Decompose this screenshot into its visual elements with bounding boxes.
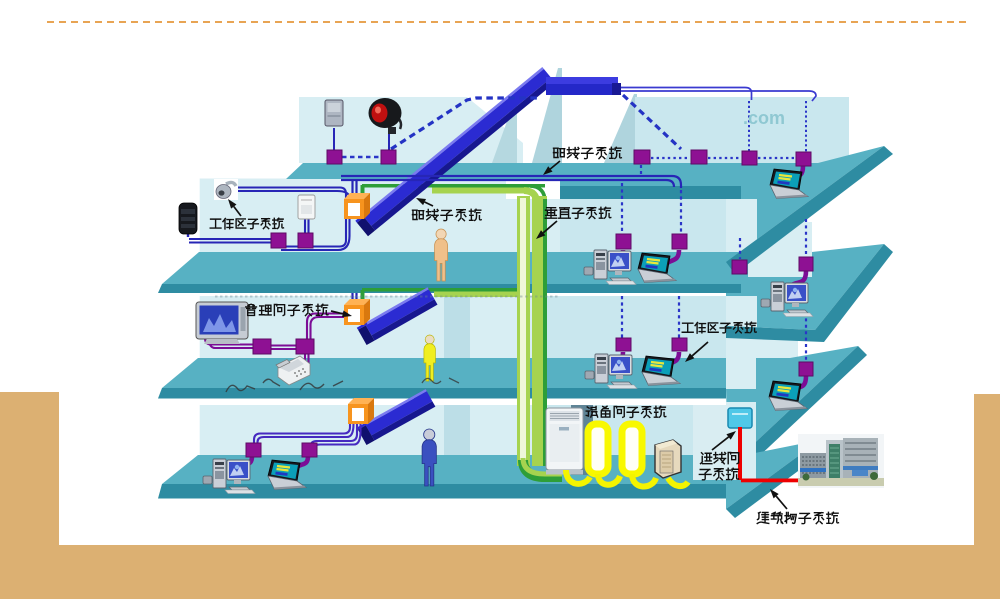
svg-text:.com: .com	[743, 108, 785, 128]
